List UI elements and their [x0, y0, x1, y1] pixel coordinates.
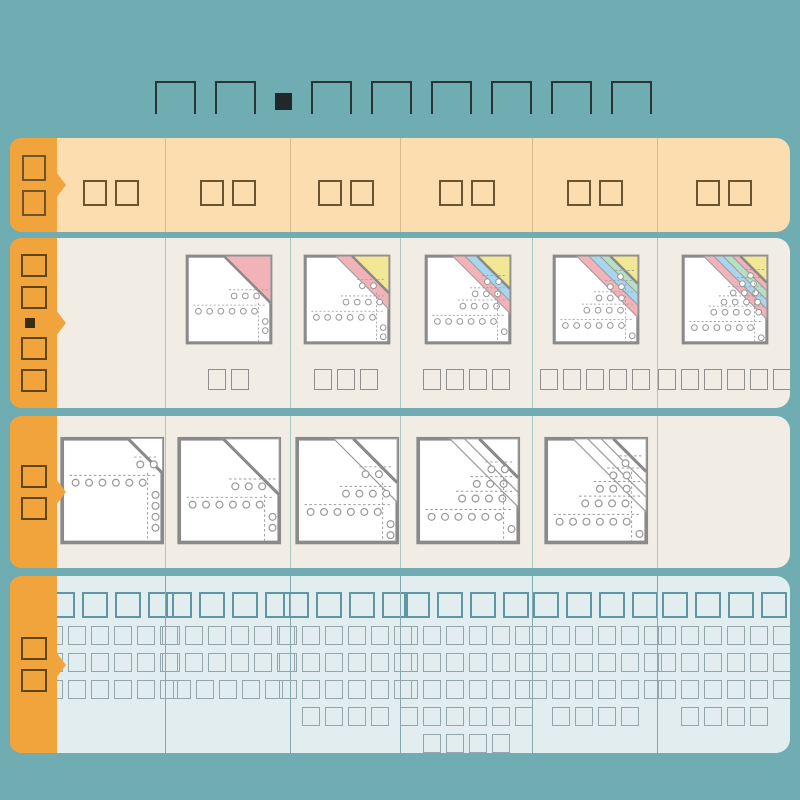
placeholder-glyph — [423, 653, 441, 672]
placeholder-glyph — [400, 626, 418, 645]
placeholder-glyph — [567, 180, 591, 206]
placeholder-glyph — [242, 680, 260, 699]
placeholder-glyph — [173, 680, 191, 699]
white-ply-row-panel — [57, 416, 790, 568]
placeholder-glyph — [231, 626, 249, 645]
placeholder-glyph — [621, 626, 639, 645]
placeholder-glyph — [552, 707, 570, 726]
placeholder-glyph — [491, 81, 532, 114]
ply-cell-6ply — [657, 238, 790, 408]
placeholder-glyph — [696, 180, 720, 206]
placeholder-glyph — [311, 81, 352, 114]
placeholder-glyph — [446, 653, 464, 672]
placeholder-glyph — [727, 626, 745, 645]
placeholder-glyph — [348, 680, 366, 699]
placeholder-glyph — [598, 626, 616, 645]
placeholder-glyph — [21, 465, 47, 488]
placeholder-glyph — [632, 369, 650, 390]
placeholder-glyph — [727, 707, 745, 726]
header-cell-2 — [165, 138, 290, 232]
placeholder-glyph — [57, 680, 63, 699]
placeholder-glyph — [318, 180, 342, 206]
placeholder-glyph — [208, 369, 226, 390]
placeholder-glyph — [446, 734, 464, 753]
usage-text-line — [658, 626, 791, 645]
placeholder-glyph — [492, 734, 510, 753]
placeholder-glyph — [162, 653, 180, 672]
page-title — [155, 81, 652, 114]
placeholder-glyph — [200, 180, 224, 206]
usage-text-line — [162, 626, 295, 645]
usage-heading — [533, 592, 658, 618]
placeholder-glyph — [552, 653, 570, 672]
ply-cell-empty — [57, 238, 165, 408]
white-cell-3ply — [290, 416, 400, 568]
placeholder-glyph — [254, 653, 272, 672]
placeholder-glyph — [727, 680, 745, 699]
usage-row-tab — [10, 576, 57, 753]
placeholder-glyph — [302, 707, 320, 726]
white-ply-row-tab — [10, 416, 57, 568]
placeholder-glyph — [371, 680, 389, 699]
usage-cell-5 — [532, 576, 657, 753]
usage-heading — [57, 592, 174, 618]
paper-stack-5ply-white-image — [534, 429, 656, 556]
placeholder-glyph — [232, 180, 256, 206]
usage-text-line — [681, 707, 768, 726]
placeholder-glyph — [598, 707, 616, 726]
placeholder-glyph — [750, 707, 768, 726]
placeholder-glyph — [773, 653, 791, 672]
ply-label — [540, 369, 650, 390]
placeholder-glyph — [423, 734, 441, 753]
placeholder-glyph — [446, 707, 464, 726]
usage-text-line — [400, 653, 533, 672]
bullet-glyph — [25, 318, 35, 328]
placeholder-glyph — [423, 369, 441, 390]
placeholder-glyph — [302, 626, 320, 645]
header-cell-4 — [400, 138, 532, 232]
placeholder-glyph — [598, 680, 616, 699]
placeholder-glyph — [302, 653, 320, 672]
placeholder-glyph — [632, 592, 658, 618]
ply-cell-5ply — [532, 238, 657, 408]
usage-cell-6 — [657, 576, 790, 753]
placeholder-glyph — [21, 337, 47, 360]
usage-text-line — [57, 653, 178, 672]
placeholder-glyph — [162, 626, 180, 645]
placeholder-glyph — [437, 592, 463, 618]
placeholder-glyph — [91, 680, 109, 699]
placeholder-glyph — [727, 653, 745, 672]
placeholder-glyph — [114, 653, 132, 672]
placeholder-glyph — [21, 497, 47, 520]
placeholder-glyph — [314, 369, 332, 390]
placeholder-glyph — [658, 369, 676, 390]
placeholder-glyph — [575, 680, 593, 699]
usage-text-line — [57, 626, 178, 645]
placeholder-glyph — [446, 626, 464, 645]
placeholder-glyph — [115, 592, 141, 618]
bullet-glyph — [275, 93, 292, 110]
paper-stack-4ply-white-image — [406, 429, 528, 556]
placeholder-glyph — [68, 626, 86, 645]
placeholder-glyph — [199, 592, 225, 618]
header-row-panel — [57, 138, 790, 232]
placeholder-glyph — [325, 707, 343, 726]
placeholder-glyph — [114, 680, 132, 699]
placeholder-glyph — [492, 680, 510, 699]
usage-text-line — [302, 707, 389, 726]
placeholder-glyph — [279, 626, 297, 645]
placeholder-glyph — [371, 707, 389, 726]
usage-text-line — [162, 653, 295, 672]
usage-text-line — [529, 653, 662, 672]
placeholder-glyph — [704, 707, 722, 726]
usage-text-line — [423, 734, 510, 753]
paper-stack-2ply-color-image — [177, 248, 279, 355]
placeholder-glyph — [469, 369, 487, 390]
placeholder-glyph — [404, 592, 430, 618]
placeholder-glyph — [761, 592, 787, 618]
placeholder-glyph — [609, 369, 627, 390]
placeholder-glyph — [219, 680, 237, 699]
paper-stack-5ply-color-image — [544, 248, 646, 355]
usage-text-line — [400, 680, 533, 699]
placeholder-glyph — [773, 626, 791, 645]
placeholder-glyph — [350, 180, 374, 206]
placeholder-glyph — [325, 626, 343, 645]
placeholder-glyph — [529, 653, 547, 672]
placeholder-glyph — [469, 680, 487, 699]
placeholder-glyph — [137, 626, 155, 645]
usage-text-line — [279, 626, 412, 645]
placeholder-glyph — [137, 680, 155, 699]
placeholder-glyph — [658, 680, 676, 699]
placeholder-glyph — [423, 707, 441, 726]
ply-label — [658, 369, 791, 390]
placeholder-glyph — [575, 653, 593, 672]
placeholder-glyph — [283, 592, 309, 618]
placeholder-glyph — [371, 81, 412, 114]
placeholder-glyph — [492, 626, 510, 645]
placeholder-glyph — [400, 680, 418, 699]
placeholder-glyph — [599, 592, 625, 618]
placeholder-glyph — [325, 653, 343, 672]
placeholder-glyph — [681, 369, 699, 390]
white-cell-2ply — [165, 416, 290, 568]
placeholder-glyph — [529, 626, 547, 645]
placeholder-glyph — [469, 734, 487, 753]
placeholder-glyph — [566, 592, 592, 618]
placeholder-glyph — [21, 286, 47, 309]
usage-text-line — [57, 680, 178, 699]
placeholder-glyph — [446, 369, 464, 390]
white-cell-empty — [657, 416, 790, 568]
placeholder-glyph — [348, 707, 366, 726]
usage-row — [10, 576, 790, 753]
placeholder-glyph — [431, 81, 472, 114]
placeholder-glyph — [750, 369, 768, 390]
ply-label — [423, 369, 510, 390]
table-header-row — [10, 138, 790, 232]
placeholder-glyph — [704, 653, 722, 672]
placeholder-glyph — [681, 680, 699, 699]
usage-text-line — [400, 626, 533, 645]
placeholder-glyph — [302, 680, 320, 699]
white-cell-1ply — [57, 416, 165, 568]
placeholder-glyph — [469, 653, 487, 672]
paper-stack-4ply-color-image — [416, 248, 518, 355]
usage-cell-4 — [400, 576, 532, 753]
placeholder-glyph — [681, 626, 699, 645]
ply-cell-3ply — [290, 238, 400, 408]
placeholder-glyph — [185, 653, 203, 672]
placeholder-glyph — [232, 592, 258, 618]
placeholder-glyph — [423, 680, 441, 699]
placeholder-glyph — [773, 680, 791, 699]
placeholder-glyph — [316, 592, 342, 618]
placeholder-glyph — [750, 626, 768, 645]
placeholder-glyph — [621, 680, 639, 699]
placeholder-glyph — [231, 653, 249, 672]
placeholder-glyph — [515, 707, 533, 726]
placeholder-glyph — [155, 81, 196, 114]
placeholder-glyph — [575, 707, 593, 726]
placeholder-glyph — [586, 369, 604, 390]
placeholder-glyph — [773, 369, 791, 390]
placeholder-glyph — [540, 369, 558, 390]
placeholder-glyph — [704, 626, 722, 645]
placeholder-glyph — [621, 653, 639, 672]
placeholder-glyph — [166, 592, 192, 618]
placeholder-glyph — [492, 653, 510, 672]
usage-row-panel — [57, 576, 790, 753]
placeholder-glyph — [529, 680, 547, 699]
paper-stack-6ply-color-image — [673, 248, 775, 355]
placeholder-glyph — [750, 653, 768, 672]
usage-text-line — [529, 626, 662, 645]
usage-heading — [662, 592, 787, 618]
usage-cell-1 — [57, 576, 165, 753]
ply-label — [208, 369, 249, 390]
placeholder-glyph — [400, 707, 418, 726]
colored-ply-row-tab — [10, 238, 57, 408]
placeholder-glyph — [348, 626, 366, 645]
placeholder-glyph — [208, 626, 226, 645]
usage-cell-2 — [165, 576, 290, 753]
placeholder-glyph — [471, 180, 495, 206]
placeholder-glyph — [552, 626, 570, 645]
colored-ply-row-panel — [57, 238, 790, 408]
placeholder-glyph — [22, 155, 46, 181]
placeholder-glyph — [728, 180, 752, 206]
paper-stack-3ply-white-image — [285, 429, 407, 556]
placeholder-glyph — [208, 653, 226, 672]
placeholder-glyph — [21, 254, 47, 277]
placeholder-glyph — [658, 653, 676, 672]
placeholder-glyph — [279, 653, 297, 672]
placeholder-glyph — [552, 680, 570, 699]
placeholder-glyph — [185, 626, 203, 645]
placeholder-glyph — [68, 653, 86, 672]
usage-text-line — [279, 680, 412, 699]
header-row-tab — [10, 138, 57, 232]
placeholder-glyph — [621, 707, 639, 726]
white-cell-5ply — [532, 416, 657, 568]
placeholder-glyph — [492, 707, 510, 726]
placeholder-glyph — [704, 369, 722, 390]
placeholder-glyph — [439, 180, 463, 206]
placeholder-glyph — [400, 653, 418, 672]
placeholder-glyph — [21, 369, 47, 392]
usage-text-line — [658, 680, 791, 699]
placeholder-glyph — [57, 626, 63, 645]
paper-stack-1ply-white-image — [57, 429, 172, 556]
placeholder-glyph — [21, 637, 47, 660]
placeholder-glyph — [563, 369, 581, 390]
paper-stack-3ply-color-image — [295, 248, 397, 355]
placeholder-glyph — [681, 653, 699, 672]
placeholder-glyph — [337, 369, 355, 390]
placeholder-glyph — [470, 592, 496, 618]
usage-heading — [283, 592, 408, 618]
placeholder-glyph — [215, 81, 256, 114]
placeholder-glyph — [492, 369, 510, 390]
usage-heading — [166, 592, 291, 618]
placeholder-glyph — [598, 653, 616, 672]
paper-stack-2ply-white-image — [167, 429, 289, 556]
placeholder-glyph — [423, 626, 441, 645]
placeholder-glyph — [22, 190, 46, 216]
placeholder-glyph — [371, 653, 389, 672]
placeholder-glyph — [231, 369, 249, 390]
placeholder-glyph — [348, 653, 366, 672]
placeholder-glyph — [91, 626, 109, 645]
placeholder-glyph — [91, 653, 109, 672]
usage-text-line — [400, 707, 533, 726]
usage-heading — [404, 592, 529, 618]
placeholder-glyph — [349, 592, 375, 618]
header-cell-1 — [57, 138, 165, 232]
placeholder-glyph — [196, 680, 214, 699]
placeholder-glyph — [469, 707, 487, 726]
placeholder-glyph — [599, 180, 623, 206]
placeholder-glyph — [371, 626, 389, 645]
ply-cell-4ply — [400, 238, 532, 408]
usage-text-line — [279, 653, 412, 672]
placeholder-glyph — [446, 680, 464, 699]
usage-text-line — [173, 680, 283, 699]
placeholder-glyph — [325, 680, 343, 699]
placeholder-glyph — [611, 81, 652, 114]
placeholder-glyph — [704, 680, 722, 699]
placeholder-glyph — [21, 669, 47, 692]
placeholder-glyph — [662, 592, 688, 618]
placeholder-glyph — [681, 707, 699, 726]
white-cell-4ply — [400, 416, 532, 568]
placeholder-glyph — [695, 592, 721, 618]
usage-text-line — [529, 680, 662, 699]
colored-ply-row — [10, 238, 790, 408]
white-ply-row — [10, 416, 790, 568]
placeholder-glyph — [575, 626, 593, 645]
usage-text-line — [552, 707, 639, 726]
header-cell-5 — [532, 138, 657, 232]
ply-label — [314, 369, 378, 390]
placeholder-glyph — [533, 592, 559, 618]
placeholder-glyph — [57, 592, 75, 618]
usage-text-line — [658, 653, 791, 672]
placeholder-glyph — [551, 81, 592, 114]
placeholder-glyph — [83, 180, 107, 206]
placeholder-glyph — [68, 680, 86, 699]
placeholder-glyph — [728, 592, 754, 618]
placeholder-glyph — [658, 626, 676, 645]
placeholder-glyph — [114, 626, 132, 645]
placeholder-glyph — [115, 180, 139, 206]
placeholder-glyph — [503, 592, 529, 618]
placeholder-glyph — [750, 680, 768, 699]
placeholder-glyph — [727, 369, 745, 390]
placeholder-glyph — [137, 653, 155, 672]
placeholder-glyph — [360, 369, 378, 390]
ply-cell-2ply — [165, 238, 290, 408]
header-cell-3 — [290, 138, 400, 232]
placeholder-glyph — [82, 592, 108, 618]
placeholder-glyph — [469, 626, 487, 645]
placeholder-glyph — [254, 626, 272, 645]
placeholder-glyph — [279, 680, 297, 699]
usage-cell-3 — [290, 576, 400, 753]
header-cell-6 — [657, 138, 790, 232]
